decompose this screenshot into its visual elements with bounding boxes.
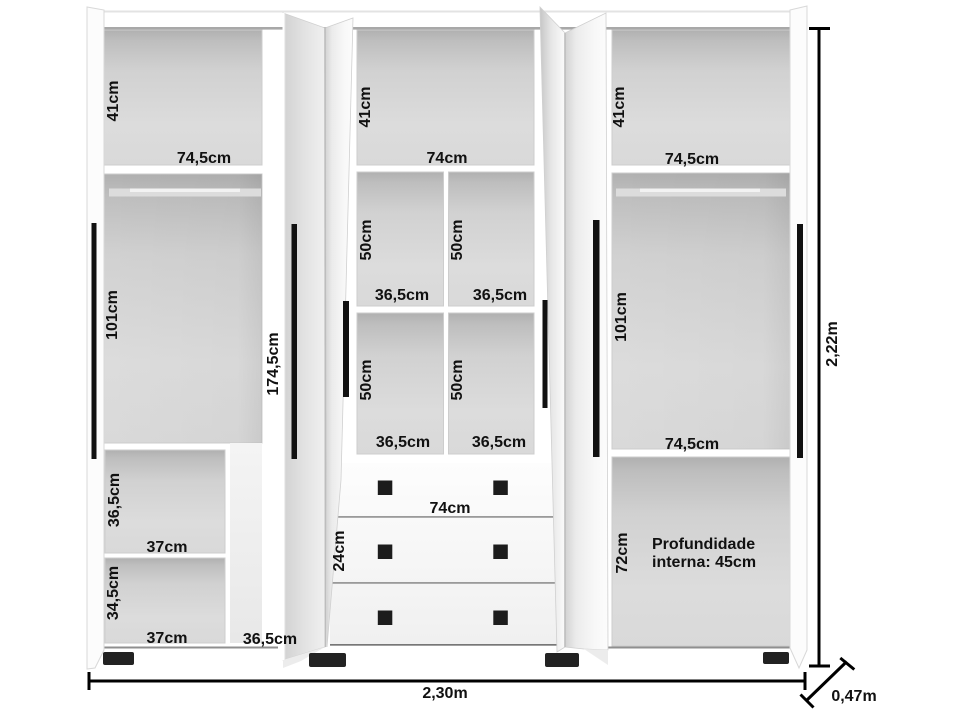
svg-text:50cm: 50cm <box>358 360 375 401</box>
svg-text:50cm: 50cm <box>449 360 466 401</box>
svg-text:74,5cm: 74,5cm <box>665 436 719 453</box>
svg-text:2,30m: 2,30m <box>422 685 467 702</box>
svg-text:36,5cm: 36,5cm <box>243 631 297 648</box>
svg-text:50cm: 50cm <box>358 220 375 261</box>
svg-text:24cm: 24cm <box>331 531 348 572</box>
svg-text:101cm: 101cm <box>104 290 121 340</box>
svg-text:36,5cm: 36,5cm <box>375 287 429 304</box>
svg-text:2,22m: 2,22m <box>824 321 841 366</box>
svg-text:174,5cm: 174,5cm <box>265 332 282 395</box>
svg-text:50cm: 50cm <box>449 220 466 261</box>
svg-text:36,5cm: 36,5cm <box>472 434 526 451</box>
svg-text:74cm: 74cm <box>430 500 471 517</box>
svg-text:interna: 45cm: interna: 45cm <box>652 554 756 571</box>
svg-text:72cm: 72cm <box>614 533 631 574</box>
svg-text:41cm: 41cm <box>105 81 122 122</box>
svg-text:41cm: 41cm <box>357 87 374 128</box>
svg-text:41cm: 41cm <box>611 87 628 128</box>
svg-text:36,5cm: 36,5cm <box>106 473 123 527</box>
svg-text:74,5cm: 74,5cm <box>177 150 231 167</box>
svg-text:37cm: 37cm <box>147 539 188 556</box>
svg-text:34,5cm: 34,5cm <box>105 566 122 620</box>
svg-text:36,5cm: 36,5cm <box>473 287 527 304</box>
svg-text:Profundidade: Profundidade <box>652 536 755 553</box>
svg-text:101cm: 101cm <box>613 292 630 342</box>
svg-text:36,5cm: 36,5cm <box>376 434 430 451</box>
svg-text:74cm: 74cm <box>427 150 468 167</box>
svg-text:37cm: 37cm <box>147 630 188 647</box>
svg-text:0,47m: 0,47m <box>831 688 876 705</box>
svg-text:74,5cm: 74,5cm <box>665 151 719 168</box>
